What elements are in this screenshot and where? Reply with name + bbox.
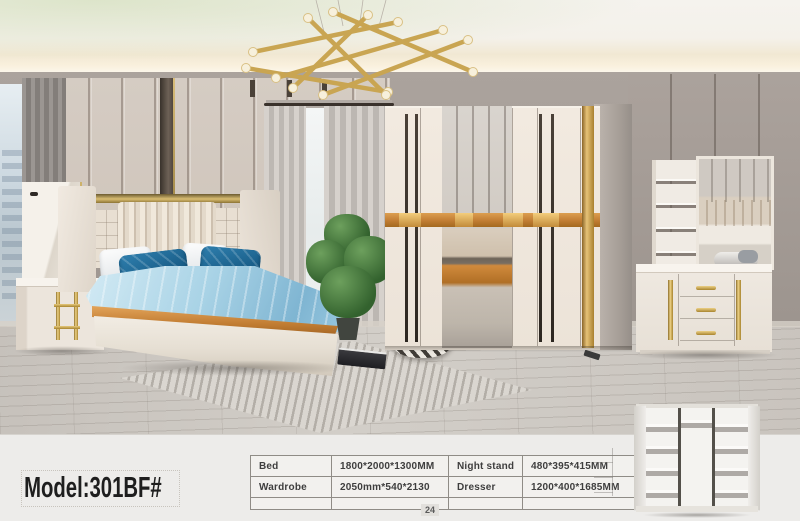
wardrobe-handle-strip [539, 114, 542, 342]
spec-table: Bed 1800*2000*1300MM Night stand 480*395… [250, 455, 646, 510]
wardrobe-door-seam [537, 108, 538, 346]
thumbnail-shelf [646, 490, 678, 498]
open-shelf-tower [652, 160, 696, 270]
wardrobe-gold-edge [582, 106, 594, 348]
thumbnail-shelf [681, 420, 712, 428]
technical-sketch-fragment [594, 448, 613, 496]
thumbnail-shadow [642, 512, 752, 518]
table-cell: Wardrobe [251, 477, 332, 498]
thumbnail-shelf [715, 424, 748, 432]
wardrobe-gold-handle [399, 213, 421, 227]
table-row [251, 498, 646, 510]
thumbnail-open-door-left [634, 406, 646, 511]
mirror-detail [30, 192, 38, 196]
dresser-mirror-reflection [699, 159, 771, 202]
thumbnail-shelf [646, 468, 678, 476]
dresser-seam [734, 274, 735, 346]
catalog-page: Model:301BF# Bed 1800*2000*1300MM Night … [0, 0, 800, 521]
table-cell: 2050mm*540*2130 [332, 477, 449, 498]
thumbnail-shelf [715, 490, 748, 498]
table-cell: 1800*2000*1300MM [332, 456, 449, 477]
table-cell: Night stand [449, 456, 523, 477]
chandelier [238, 0, 490, 114]
bedroom-photo [0, 0, 800, 434]
dresser-top [636, 264, 772, 273]
page-number: 24 [421, 504, 439, 516]
table-cell [449, 498, 523, 510]
wardrobe-gold-handle [455, 213, 473, 227]
wardrobe-door-seam [420, 108, 421, 346]
table-row: Bed 1800*2000*1300MM Night stand 480*395… [251, 456, 646, 477]
thumbnail-interior [646, 408, 748, 508]
dresser-gold-handle [736, 280, 741, 340]
wardrobe-gold-handle [533, 213, 559, 227]
dresser-seam [678, 274, 679, 346]
drawer-handle [696, 286, 716, 290]
wardrobe-handle-strip [405, 114, 408, 342]
dresser-shadow [632, 350, 778, 360]
table-cell [251, 498, 332, 510]
thumbnail-open-door-right [748, 406, 760, 511]
nightstand-shadow [14, 346, 110, 356]
table-cell: Dresser [449, 477, 523, 498]
dresser-decor [738, 250, 758, 263]
plant-foliage [320, 266, 376, 318]
model-label: Model:301BF# [22, 472, 162, 505]
dresser-mirror-reflection [699, 200, 771, 226]
table-cell: Bed [251, 456, 332, 477]
drawer-seam [680, 318, 734, 319]
wardrobe-shadow [385, 346, 632, 352]
nightstand-gold-bar [54, 326, 80, 329]
wardrobe-door-seam [580, 108, 581, 346]
nightstand-gold-handle [74, 292, 78, 340]
drawer-handle [696, 331, 716, 335]
wardrobe-gold-handle [503, 213, 523, 227]
nightstand-gold-handle [56, 292, 60, 340]
wardrobe-handle-strip [415, 114, 418, 342]
drawer-handle [696, 308, 716, 312]
wardrobe-handle-strip [551, 114, 554, 342]
nightstand-gold-bar [54, 304, 80, 307]
thumbnail-shelf [646, 446, 678, 454]
thumbnail-shelf [646, 424, 678, 432]
dresser-gold-handle [668, 280, 673, 340]
wardrobe-door-seam [512, 108, 513, 346]
drawer-seam [680, 296, 734, 297]
model-label-box: Model:301BF# [21, 470, 180, 507]
table-cell [523, 498, 646, 510]
bed-shadow [120, 360, 350, 376]
wardrobe-interior-thumbnail [634, 404, 760, 514]
thumbnail-shelf [715, 468, 748, 476]
table-cell: 1200*400*1685MM [523, 477, 646, 498]
thumbnail-shelf [715, 446, 748, 454]
wardrobe-mirror-reflection [442, 106, 512, 226]
table-row: Wardrobe 2050mm*540*2130 Dresser 1200*40… [251, 477, 646, 498]
table-cell: 480*395*415MM [523, 456, 646, 477]
headboard-wing-left [58, 186, 96, 292]
plant-pot [334, 318, 362, 340]
drawer-seam [680, 340, 734, 341]
